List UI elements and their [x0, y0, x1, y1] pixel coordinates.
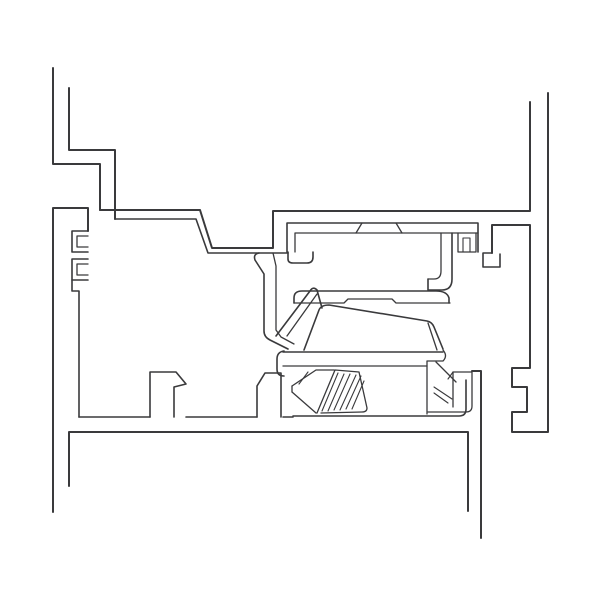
support-hatch-1 [434, 387, 452, 399]
glazing-tab-left [150, 372, 186, 417]
wedge-upper-edge [292, 370, 334, 386]
lock-bottom-plate [293, 380, 466, 416]
sash-top-left-inner-wall [69, 88, 115, 219]
frame-right-foot [483, 253, 500, 267]
frame-left-outer-wall [53, 208, 88, 512]
keeper-plate-pad [356, 223, 402, 233]
keeper-screw-boss-inner [463, 238, 470, 252]
lock-arm-outer [255, 253, 289, 349]
frame-left-screw-channel-upper-inner [77, 236, 88, 247]
sash-shelf-top-surface [100, 102, 530, 248]
keeper-plate-underside [295, 233, 478, 252]
latch-hook-edge [276, 288, 322, 336]
wedge-inner-line [299, 372, 308, 384]
wedge-lower-edge [292, 392, 316, 413]
frame-right-ledge [472, 371, 481, 538]
sill-bottom-profile [69, 432, 468, 511]
sash-top-left-outer-wall [53, 68, 100, 210]
technical-drawing [0, 0, 600, 600]
latch-bolt-edge-line [428, 323, 437, 350]
hatch-lines [322, 373, 364, 411]
latch-bolt [304, 305, 443, 350]
frame-left-screw-channel-upper [72, 231, 88, 252]
frame-left-screw-channel-lower-inner [77, 264, 88, 275]
frame-left-screw-channel-lower [72, 259, 88, 280]
keeper-hook-outer [428, 233, 452, 290]
keeper-lip [288, 252, 313, 263]
frame-left-web [72, 280, 79, 417]
keeper-screw-boss [458, 233, 476, 252]
lock-cover-bottom-edge [294, 299, 450, 303]
bolt-landing [427, 350, 446, 414]
glazing-tab-right [257, 373, 281, 417]
screenshot-canvas [0, 0, 600, 600]
keeper-hook-inner [428, 233, 441, 279]
keeper-plate-outline [287, 223, 478, 252]
